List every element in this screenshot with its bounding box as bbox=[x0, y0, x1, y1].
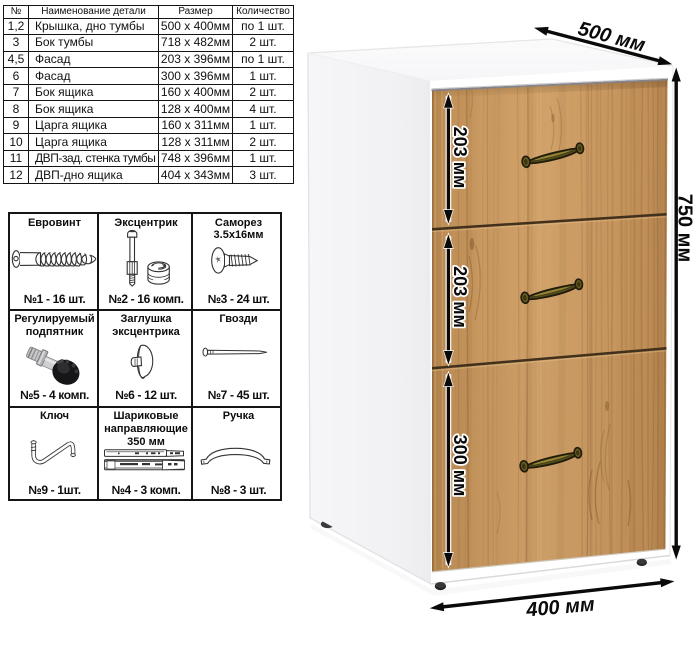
svg-text:203 мм: 203 мм bbox=[450, 266, 470, 328]
svg-text:300 мм: 300 мм bbox=[450, 435, 470, 497]
svg-text:203 мм: 203 мм bbox=[450, 127, 470, 189]
svg-text:750 мм: 750 мм bbox=[674, 194, 696, 263]
svg-text:400 мм: 400 мм bbox=[524, 594, 595, 622]
